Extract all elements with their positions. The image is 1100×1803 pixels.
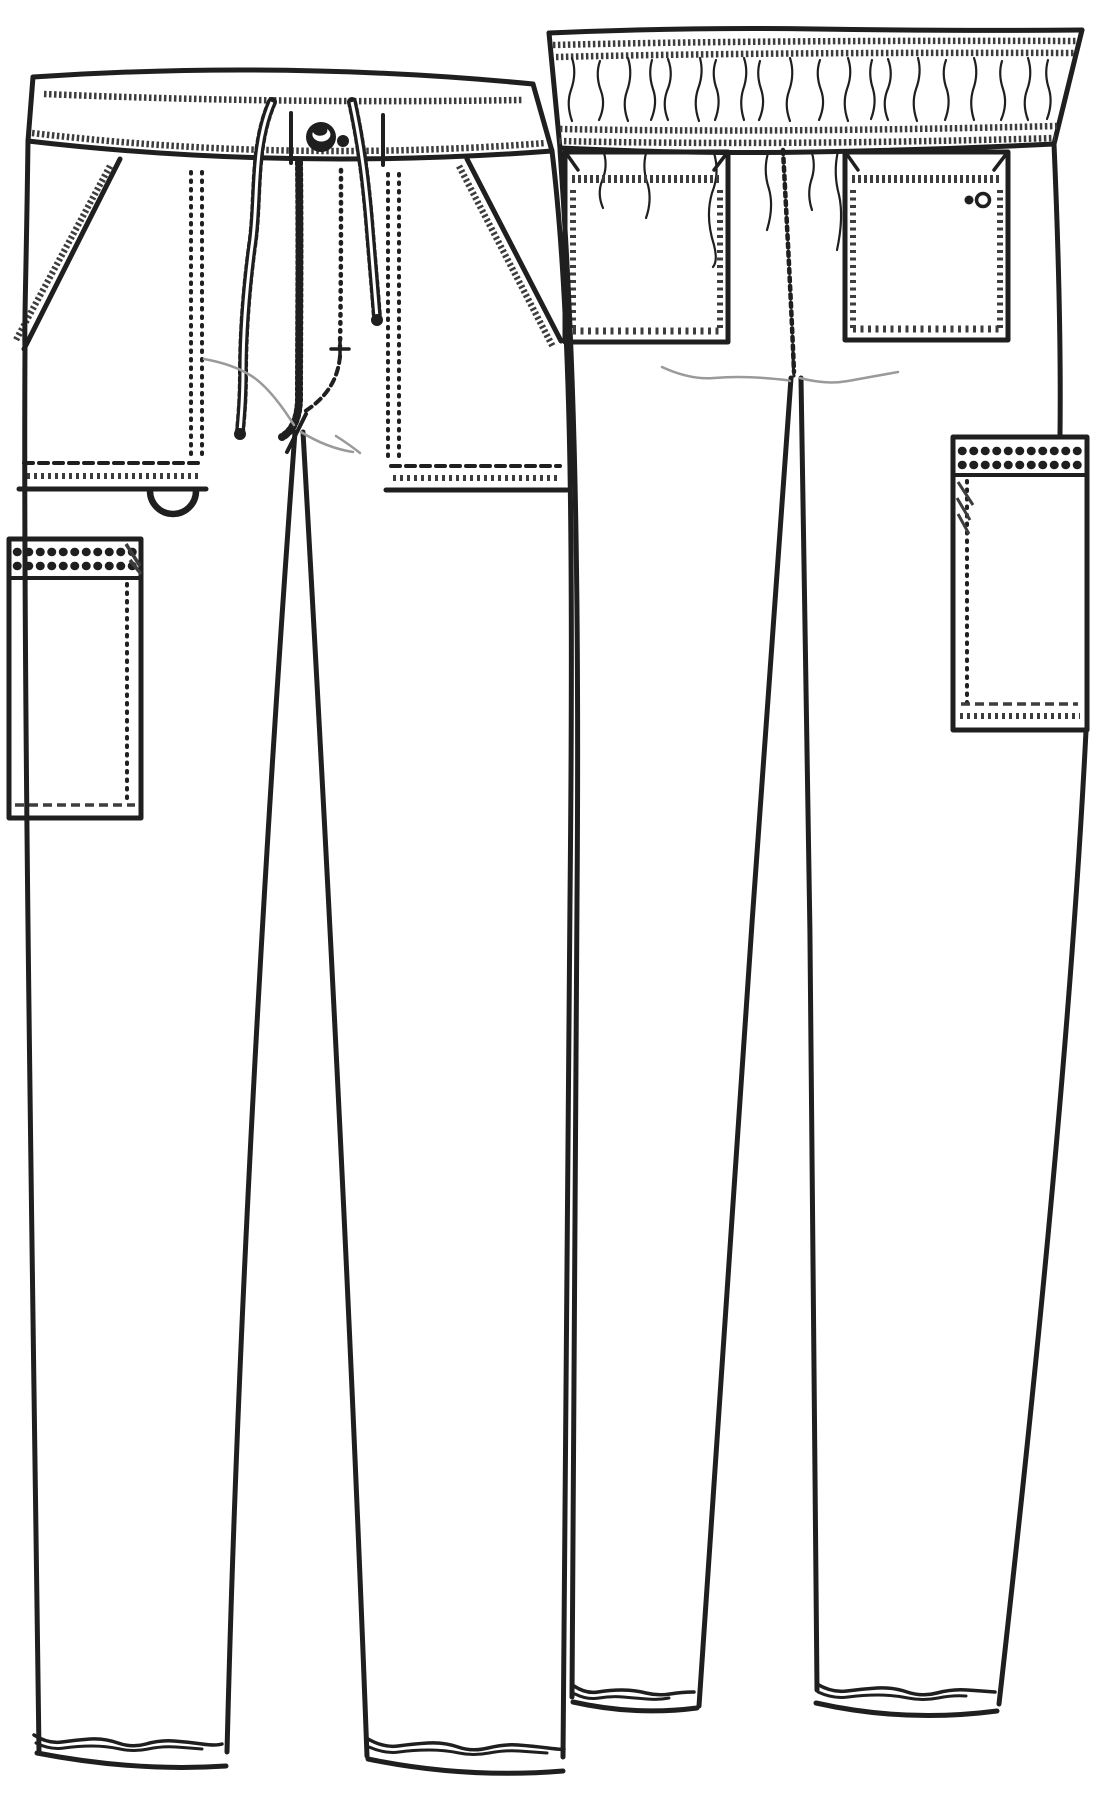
back-pocket-left [565,152,728,342]
drawstring-tip-left [234,428,246,440]
back-hem-left [573,1686,697,1711]
waistband-button-icon [306,122,349,152]
sketch-canvas [0,0,1100,1803]
back-legs [560,144,1086,1716]
back-pocket-right [845,152,1008,340]
front-slant-pocket-left [16,159,120,349]
double-ring-logo-icon [965,194,990,207]
front-pocket-bag-right [386,174,567,490]
back-view [549,29,1087,1716]
front-fly [282,162,349,452]
elastic-gathers [569,58,1051,121]
front-view [0,0,571,1773]
drawstring-tip-right [371,314,383,326]
d-ring-loop-icon [150,491,196,514]
back-elastic-waistband [549,29,1082,268]
front-slant-pocket-right [459,159,561,347]
center-back-seam [783,150,794,376]
below-band-gathers [600,151,841,267]
front-waistband [28,70,552,165]
front-hem-left [34,1735,226,1767]
back-hem-right [816,1684,997,1716]
drawstring [0,0,383,440]
front-hem-right [368,1739,564,1773]
cargo-pocket-right [953,437,1087,730]
front-pocket-bag-left [19,172,206,489]
technical-sketch [0,0,1100,1803]
